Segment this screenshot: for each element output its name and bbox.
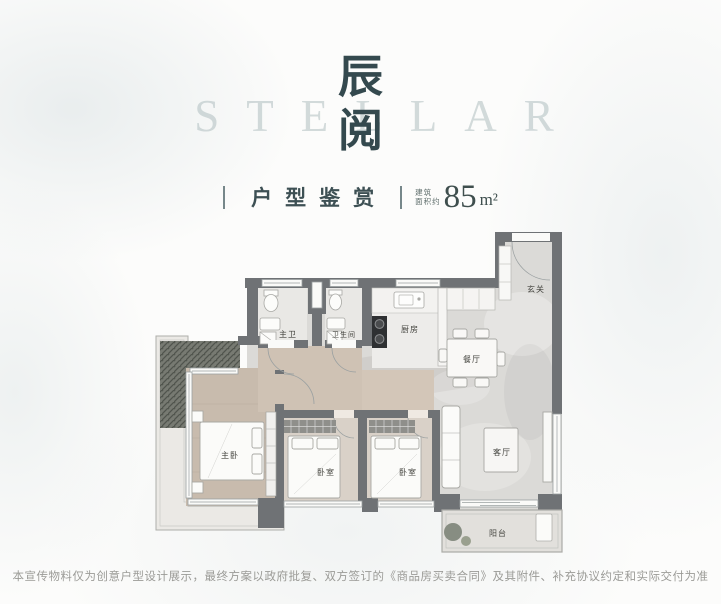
area-group: 建筑 面积约 85 m² bbox=[415, 182, 498, 212]
label-bath: 卫生间 bbox=[332, 330, 356, 339]
label-bedroom-a: 卧室 bbox=[317, 467, 335, 477]
label-living: 客厅 bbox=[493, 447, 511, 457]
divider-left bbox=[223, 186, 225, 209]
poster: STELLAR 辰 阅 户型鉴赏 建筑 面积约 85 m² bbox=[0, 0, 721, 604]
disclaimer-text: 本宣传物料仅为创意户型设计展示，最终方案以政府批复、双方签订的《商品房买卖合同》… bbox=[0, 568, 721, 584]
chair-icon bbox=[453, 329, 467, 338]
subtitle-label: 户型鉴赏 bbox=[238, 182, 387, 212]
chair-icon bbox=[475, 329, 489, 338]
floor-plan-drawing: 主卧 卧室 卧室 客厅 餐厅 厨房 主卫 卫生间 玄关 阳台 bbox=[150, 222, 610, 558]
area-prefix-line2: 面积约 bbox=[415, 197, 441, 206]
area-unit: m² bbox=[480, 190, 498, 212]
area-value: 85 bbox=[444, 182, 477, 212]
page-title: 辰 阅 bbox=[0, 50, 721, 158]
floor-plan: 主卧 卧室 卧室 客厅 餐厅 厨房 主卫 卫生间 玄关 阳台 bbox=[150, 222, 610, 558]
chair-icon bbox=[497, 352, 505, 366]
chair-icon bbox=[453, 378, 467, 387]
title-char-2: 阅 bbox=[0, 104, 721, 158]
label-balcony: 阳台 bbox=[489, 528, 507, 538]
label-master-bath: 主卫 bbox=[279, 329, 297, 339]
label-kitchen: 厨房 bbox=[401, 324, 419, 334]
label-master-bedroom: 主卧 bbox=[221, 450, 239, 460]
tv-cabinet bbox=[543, 412, 552, 482]
area-prefix: 建筑 面积约 bbox=[415, 188, 441, 206]
title-char-1: 辰 bbox=[0, 50, 721, 104]
sofa-icon bbox=[442, 406, 460, 488]
area-prefix-line1: 建筑 bbox=[415, 188, 441, 197]
divider-right bbox=[400, 186, 402, 209]
basin-icon bbox=[327, 318, 345, 329]
basin-icon bbox=[260, 318, 280, 330]
corridor-floor bbox=[258, 346, 362, 412]
chair-icon bbox=[475, 378, 489, 387]
entry-door-gap bbox=[512, 233, 550, 241]
label-bedroom-b: 卧室 bbox=[399, 467, 417, 477]
plant-icon bbox=[444, 523, 462, 541]
label-foyer: 玄关 bbox=[527, 284, 545, 294]
chair-icon bbox=[439, 349, 447, 362]
subtitle-row: 户型鉴赏 建筑 面积约 85 m² bbox=[0, 182, 721, 212]
plant-icon bbox=[461, 536, 471, 546]
label-dining: 餐厅 bbox=[463, 355, 481, 364]
